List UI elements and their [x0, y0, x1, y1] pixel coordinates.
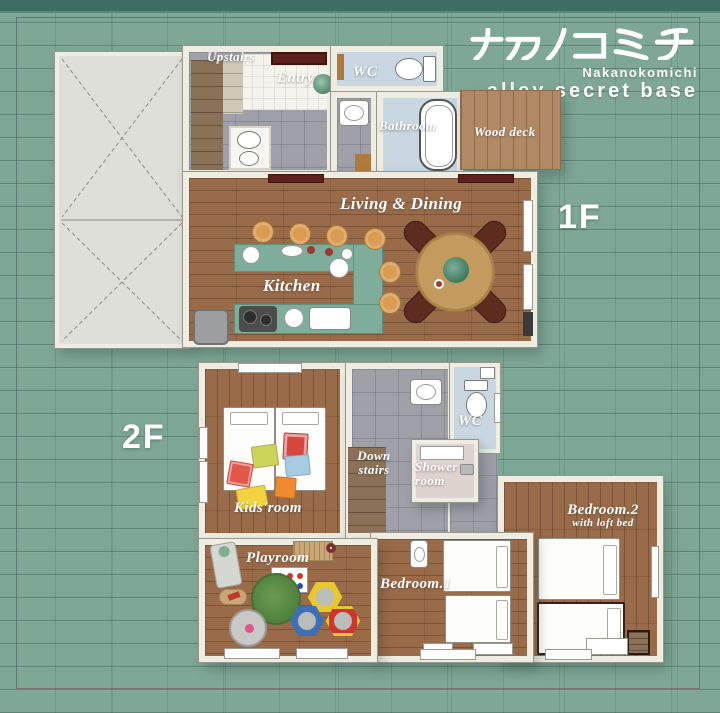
- toy-piece: [227, 591, 240, 601]
- room-label-bedroom2-block: Bedroom.2 with loft bed: [548, 502, 658, 529]
- x-marks: [59, 56, 185, 344]
- window: [494, 393, 501, 423]
- stool-icon: [379, 292, 401, 314]
- stool-icon: [252, 221, 274, 243]
- window: [523, 200, 533, 252]
- bed-icon: [538, 538, 620, 600]
- stove-icon: [239, 306, 277, 332]
- window: [651, 546, 659, 598]
- hex-center: [298, 612, 316, 630]
- bedroom-1: [371, 533, 533, 662]
- stool-icon: [364, 228, 386, 250]
- bottom-band-dark: [0, 0, 720, 11]
- window: [199, 427, 208, 459]
- plate: [281, 245, 303, 257]
- luggage-rack: [586, 638, 628, 655]
- window: [545, 649, 592, 660]
- pillow: [496, 600, 508, 640]
- sink-bowl: [416, 384, 436, 400]
- room-label-wc-1f: WC: [353, 64, 377, 81]
- hex-center: [316, 588, 334, 606]
- room-label-wood-deck: Wood deck: [474, 124, 535, 140]
- sink-bowl: [344, 105, 364, 121]
- pillow: [230, 412, 268, 425]
- stairs-landing: [223, 60, 243, 114]
- play-mat: [226, 460, 254, 488]
- room-label-bedroom2-note: with loft bed: [548, 517, 658, 529]
- baby-chair-icon: [229, 609, 267, 647]
- play-mat: [284, 454, 311, 477]
- table-plant-icon: [218, 545, 231, 558]
- top-cabinet: [458, 174, 514, 183]
- plate: [284, 308, 304, 328]
- dot: [297, 573, 303, 579]
- stool-icon: [379, 261, 401, 283]
- wood-toy: [219, 589, 247, 605]
- play-mat: [274, 476, 297, 499]
- room-label-kitchen: Kitchen: [263, 276, 321, 296]
- bathroom-1f: [377, 92, 463, 178]
- plate-small: [307, 246, 315, 254]
- window: [523, 264, 533, 310]
- toilet-icon: [237, 131, 261, 149]
- title-jp-katakana: [468, 28, 698, 60]
- window: [224, 648, 280, 659]
- plant-icon: [313, 74, 333, 94]
- bed-icon: [443, 540, 511, 592]
- sink-icon: [410, 379, 442, 405]
- bidet-icon: [239, 151, 259, 166]
- burner: [243, 310, 257, 324]
- plate: [326, 543, 336, 553]
- plate: [341, 248, 353, 260]
- entry-hall-1f: [183, 46, 333, 176]
- pillow: [603, 545, 617, 595]
- room-label-living-dining: Living & Dining: [340, 194, 462, 214]
- pillow: [282, 412, 319, 425]
- window: [420, 649, 476, 660]
- side-table: [209, 541, 242, 589]
- shower-tray: [420, 446, 464, 460]
- room-label-playroom: Playroom: [246, 550, 309, 567]
- window: [238, 363, 302, 373]
- chair-dot: [245, 624, 254, 633]
- av-unit: [523, 312, 533, 336]
- floor-mat: [473, 643, 513, 655]
- room-label-entry: Entry: [277, 70, 314, 87]
- title-romaji: Nakanokomichi: [430, 65, 698, 80]
- washroom-1f: [331, 92, 377, 178]
- bathtub-inner: [425, 105, 453, 167]
- fridge-icon: [193, 309, 229, 345]
- dining-table-icon: [415, 232, 495, 312]
- toilet-icon: [395, 58, 423, 80]
- sink-icon: [339, 100, 369, 126]
- sink-bowl: [414, 547, 425, 562]
- plate-small: [325, 248, 333, 256]
- room-label-shower-room: Shower room: [415, 460, 467, 487]
- table-plant-icon: [443, 257, 469, 283]
- plate: [242, 246, 260, 264]
- entry-mat: [271, 52, 327, 65]
- plate-small: [434, 279, 444, 289]
- room-label-down-stairs: Down stairs: [343, 449, 405, 476]
- corner-sink-icon: [480, 367, 495, 379]
- toilet-tank: [464, 380, 488, 391]
- window: [199, 461, 208, 503]
- pillow: [496, 546, 508, 588]
- tv-board: [268, 174, 324, 183]
- room-label-wc-2f: WC: [458, 413, 482, 430]
- burner: [260, 314, 272, 326]
- room-label-bedroom1: Bedroom.1: [380, 576, 452, 593]
- wc-door: [337, 54, 344, 80]
- stool-icon: [326, 225, 348, 247]
- floor-label-2f: 2F: [122, 418, 166, 457]
- hex-center: [334, 612, 352, 630]
- floor-label-1f: 1F: [558, 198, 602, 237]
- plate: [329, 258, 349, 278]
- washroom-door: [355, 154, 371, 174]
- toilet-tank: [423, 56, 436, 82]
- window: [296, 648, 348, 659]
- toilet-room-1f: [229, 126, 271, 170]
- play-mat: [251, 443, 280, 468]
- bathtub-icon: [419, 99, 457, 171]
- room-label-kids-room: Kids'room: [234, 500, 302, 517]
- wc-room-1f: [331, 46, 443, 92]
- kitchen-sink-icon: [309, 307, 351, 330]
- room-label-upstairs: Upstairs: [207, 49, 255, 65]
- loft-ladder-icon: [627, 630, 650, 655]
- floor-plan-poster: Nakanokomichi alley secret base: [0, 0, 720, 713]
- stool-icon: [289, 223, 311, 245]
- stairs-up-icon: [191, 60, 223, 170]
- sink-icon: [410, 540, 428, 568]
- room-label-bathroom: Bathroom: [379, 118, 436, 134]
- garage-area: [55, 52, 189, 348]
- bed-icon: [445, 595, 511, 643]
